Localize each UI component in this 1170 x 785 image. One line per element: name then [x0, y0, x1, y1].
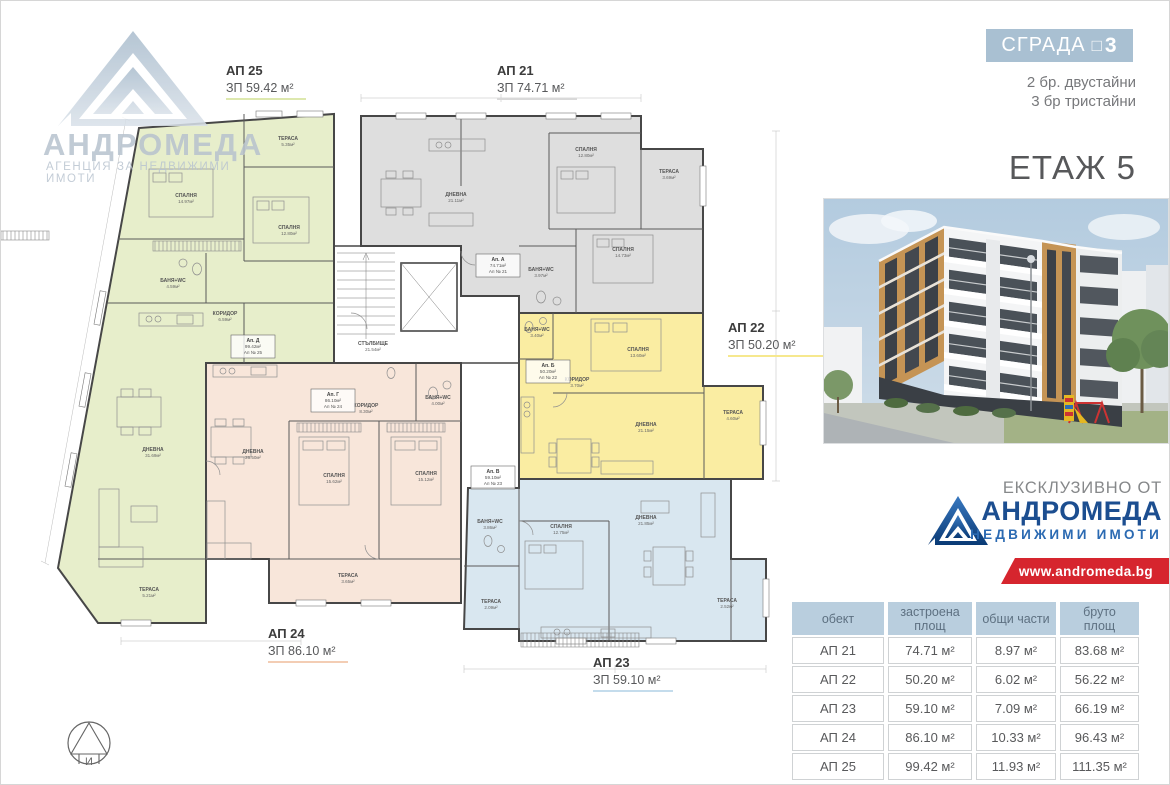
- brand-name-text: АНДРОМЕДА: [981, 496, 1162, 527]
- unit-mix-line: 3 бр тристайни: [1027, 92, 1136, 111]
- room-area: 26.50м²: [245, 455, 261, 460]
- unit-tag-line: Ап № 23: [484, 481, 503, 486]
- table-header-cell: обект: [792, 602, 884, 635]
- table-cell: 56.22 м²: [1060, 666, 1139, 693]
- badge-label: СГРАДА: [1001, 34, 1085, 57]
- unit-tag-line: 86.10м²: [325, 398, 342, 403]
- table-cell: АП 23: [792, 695, 884, 722]
- table-cell: 96.43 м²: [1060, 724, 1139, 751]
- unit-tag-line: Ап № 24: [324, 404, 343, 409]
- elevator-shaft: [401, 263, 457, 331]
- room-area: 31.69м²: [145, 453, 161, 458]
- floor-plan: ТЕРАСА 5.35м² СПАЛНЯ 14.97м² СПАЛНЯ 12.8…: [1, 1, 791, 785]
- table-cell: 50.20 м²: [888, 666, 972, 693]
- room-area: 12.80м²: [281, 231, 297, 236]
- svg-text:И: И: [85, 756, 93, 768]
- room-area: 2.52м²: [720, 604, 734, 609]
- table-cell: 66.19 м²: [1060, 695, 1139, 722]
- unit-tag-line: 74.71м²: [490, 263, 507, 268]
- room-area: 5.21м²: [142, 593, 156, 598]
- room-area: 4.00м²: [431, 401, 445, 406]
- room-area: 14.97м²: [178, 199, 194, 204]
- table-header-cell: общи части: [976, 602, 1056, 635]
- apartment-id: АП 23: [593, 656, 673, 671]
- table-cell: 111.35 м²: [1060, 753, 1139, 780]
- stairwell-area: 21.54м²: [365, 347, 381, 352]
- apartment-label-ap23: АП 23 ЗП 59.10 м²: [593, 656, 673, 692]
- apartment-label-ap25: АП 25 ЗП 59.42 м²: [226, 64, 306, 100]
- table-cell: 10.33 м²: [976, 724, 1056, 751]
- table-cell: АП 22: [792, 666, 884, 693]
- area-table: обект застроена площ общи части бруто пл…: [792, 602, 1139, 780]
- table-cell: 99.42 м²: [888, 753, 972, 780]
- table-cell: АП 25: [792, 753, 884, 780]
- website-banner: www.andromeda.bg: [1001, 558, 1170, 584]
- table-cell: 7.09 м²: [976, 695, 1056, 722]
- room-area: 15.62м²: [326, 479, 342, 484]
- room-area: 15.12м²: [418, 477, 434, 482]
- website-url: www.andromeda.bg: [1019, 564, 1153, 579]
- table-cell: 86.10 м²: [888, 724, 972, 751]
- unit-tag-line: 50.20м²: [540, 369, 557, 374]
- unit-tag-line: Ап № 21: [489, 269, 508, 274]
- unit-mix-text: 2 бр. двустайни 3 бр тристайни: [1027, 73, 1136, 111]
- room-area: 21.11м²: [448, 198, 464, 203]
- apartment-label-ap24: АП 24 ЗП 86.10 м²: [268, 627, 348, 663]
- table-cell: 74.71 м²: [888, 637, 972, 664]
- brand-subtitle-text: НЕДВИЖИМИ ИМОТИ: [970, 527, 1162, 542]
- apartment-area: ЗП 86.10 м²: [268, 644, 348, 663]
- badge-number: 3: [1105, 34, 1118, 58]
- building-render-image: [824, 199, 1168, 443]
- table-cell: 8.97 м²: [976, 637, 1056, 664]
- room-area: 21.15м²: [638, 428, 654, 433]
- room-area: 14.73м²: [615, 253, 631, 258]
- apartment-region-ap22: [519, 313, 763, 479]
- apartment-id: АП 22: [728, 321, 823, 336]
- table-cell: 11.93 м²: [976, 753, 1056, 780]
- table-cell: 59.10 м²: [888, 695, 972, 722]
- apartment-id: АП 21: [497, 64, 577, 79]
- room-area: 8.30м²: [359, 409, 373, 414]
- badge-number-glyph: □: [1092, 36, 1103, 56]
- room-area: 12.80м²: [578, 153, 594, 158]
- room-area: 4.60м²: [726, 416, 740, 421]
- unit-tag-line: Ап № 22: [539, 375, 558, 380]
- room-area: 3.65м²: [341, 579, 355, 584]
- apartment-area: ЗП 50.20 м²: [728, 338, 823, 357]
- table-cell: 83.68 м²: [1060, 637, 1139, 664]
- building-badge: СГРАДА □ 3: [986, 29, 1133, 62]
- table-header-cell: застроена площ: [888, 602, 972, 635]
- apartment-region-ap21: [361, 116, 703, 313]
- unit-tag-line: Ап № 25: [244, 350, 263, 355]
- room-area: 6.59м²: [218, 317, 232, 322]
- apartment-area: ЗП 74.71 м²: [497, 81, 577, 100]
- room-area: 2.09м²: [484, 605, 498, 610]
- room-area: 21.85м²: [638, 521, 654, 526]
- table-cell: 6.02 м²: [976, 666, 1056, 693]
- table-cell: АП 21: [792, 637, 884, 664]
- apartment-id: АП 24: [268, 627, 348, 642]
- apartment-region-ap23: [464, 479, 766, 641]
- apartment-area: ЗП 59.42 м²: [226, 81, 306, 100]
- room-area: 5.35м²: [281, 142, 295, 147]
- apartment-area: ЗП 59.10 м²: [593, 673, 673, 692]
- unit-tag-line: 59.10м²: [485, 475, 502, 480]
- apartment-label-ap22: АП 22 ЗП 50.20 м²: [728, 321, 823, 357]
- building-render: [823, 198, 1169, 444]
- room-area: 3.70м²: [570, 383, 584, 388]
- room-area: 3.69м²: [662, 175, 676, 180]
- room-area: 4.59м²: [166, 284, 180, 289]
- room-area: 3.86м²: [483, 525, 497, 530]
- room-area: 12.75м²: [553, 530, 569, 535]
- floor-title: ЕТАЖ 5: [1009, 149, 1136, 187]
- table-header-cell: бруто площ: [1060, 602, 1139, 635]
- room-area: 3.97м²: [534, 273, 548, 278]
- unit-tag-line: 99.42м²: [245, 344, 262, 349]
- apartment-label-ap21: АП 21 ЗП 74.71 м²: [497, 64, 577, 100]
- apartment-id: АП 25: [226, 64, 306, 79]
- flyer-canvas: ТЕРАСА 5.35м² СПАЛНЯ 14.97м² СПАЛНЯ 12.8…: [0, 0, 1170, 785]
- table-cell: АП 24: [792, 724, 884, 751]
- room-area: 3.40м²: [530, 333, 544, 338]
- unit-mix-line: 2 бр. двустайни: [1027, 73, 1136, 92]
- room-area: 13.60м²: [630, 353, 646, 358]
